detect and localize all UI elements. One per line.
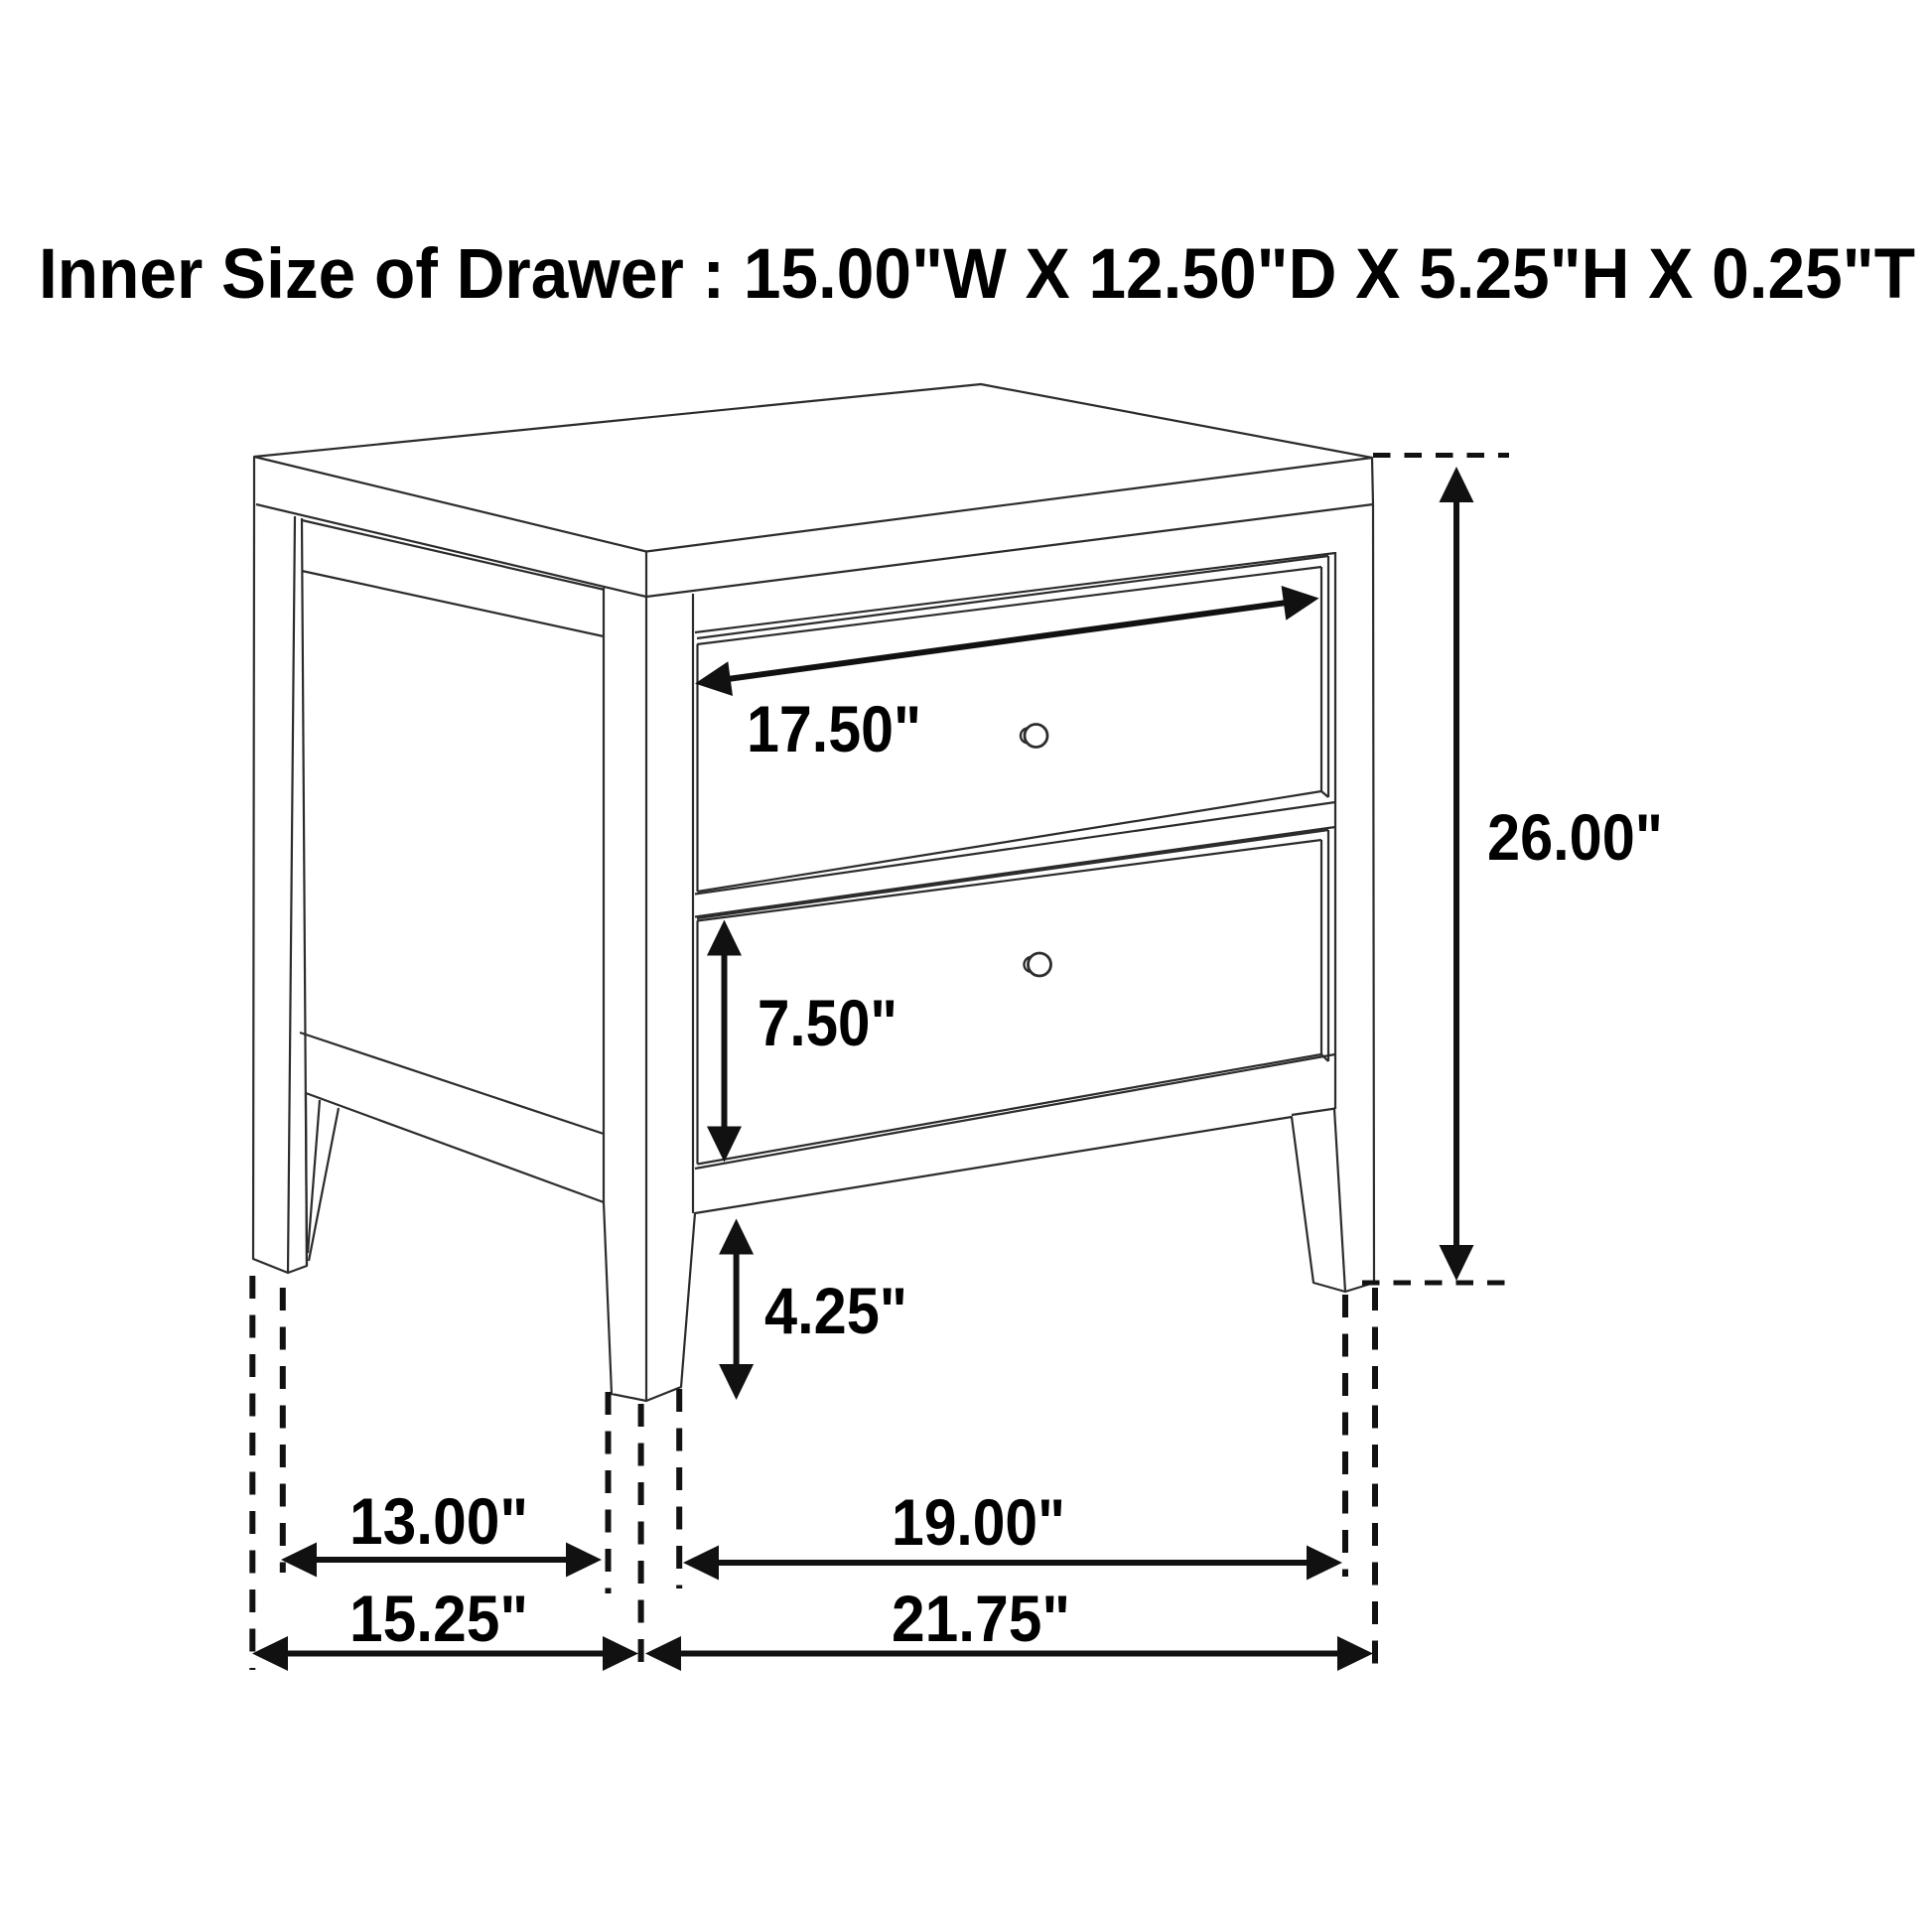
svg-text:19.00": 19.00" (892, 1485, 1065, 1559)
svg-text:17.50": 17.50" (747, 692, 921, 765)
svg-text:21.75": 21.75" (892, 1582, 1070, 1655)
svg-text:4.25": 4.25" (764, 1274, 907, 1347)
svg-text:13.00": 13.00" (349, 1484, 528, 1558)
svg-text:15.25": 15.25" (349, 1582, 528, 1655)
svg-text:Inner Size of Drawer : 15.00"W: Inner Size of Drawer : 15.00"W X 12.50"D… (39, 234, 1915, 314)
svg-text:26.00": 26.00" (1487, 800, 1663, 874)
svg-text:7.50": 7.50" (758, 986, 897, 1059)
